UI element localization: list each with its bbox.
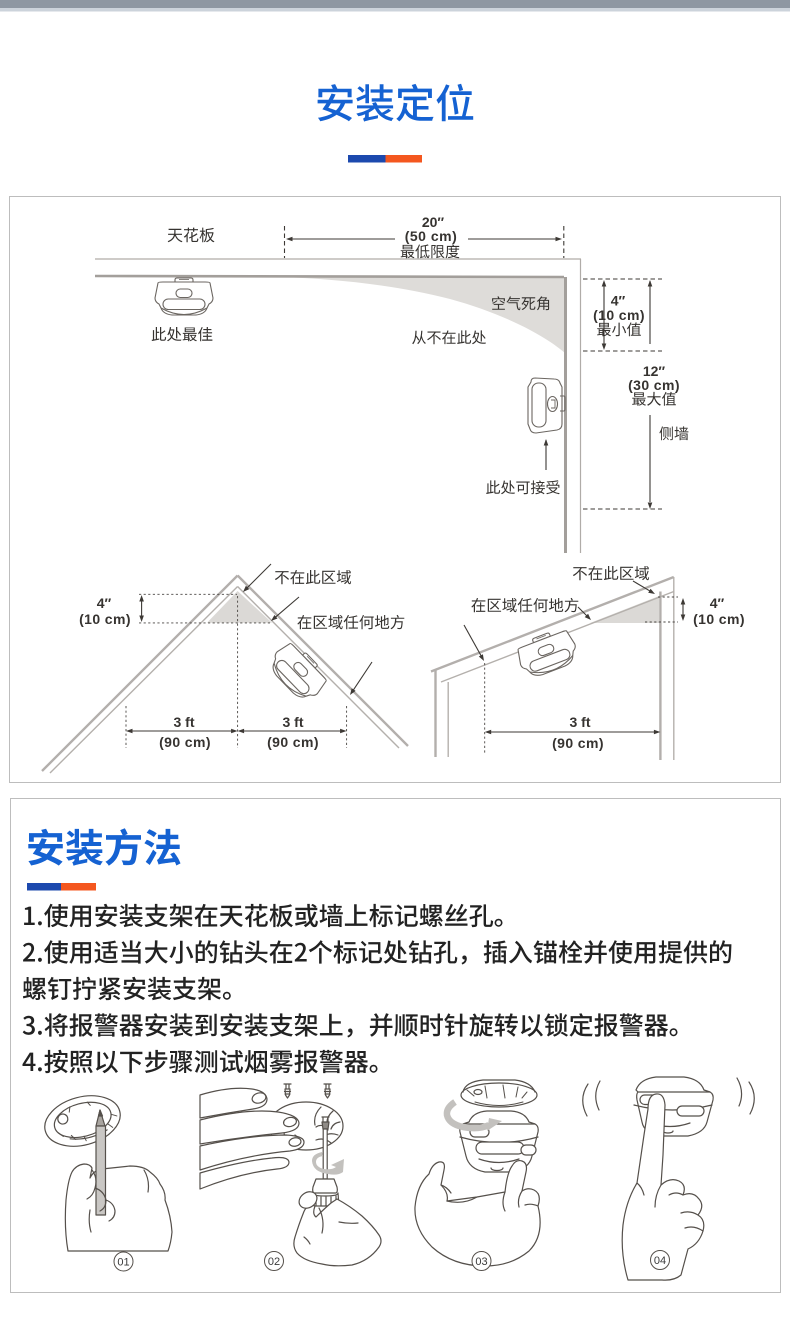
svg-text:4″: 4″ <box>97 595 112 611</box>
svg-text:3 ft: 3 ft <box>570 714 591 730</box>
svg-text:(10 cm): (10 cm) <box>79 611 131 627</box>
svg-text:04: 04 <box>654 1255 666 1267</box>
svg-text:(30 cm): (30 cm) <box>628 377 680 393</box>
svg-text:4″: 4″ <box>710 595 725 611</box>
svg-text:03: 03 <box>475 1256 487 1268</box>
svg-text:(10 cm): (10 cm) <box>593 307 645 323</box>
svg-text:(50 cm): (50 cm) <box>405 228 458 244</box>
svg-text:(10 cm): (10 cm) <box>693 611 745 627</box>
svg-text:02: 02 <box>268 1256 280 1268</box>
svg-text:(90 cm): (90 cm) <box>159 734 211 750</box>
svg-text:(90 cm): (90 cm) <box>267 734 319 750</box>
svg-text:01: 01 <box>117 1257 129 1269</box>
svg-text:3 ft: 3 ft <box>174 714 195 730</box>
svg-text:(90 cm): (90 cm) <box>552 735 604 751</box>
svg-text:3 ft: 3 ft <box>283 714 304 730</box>
